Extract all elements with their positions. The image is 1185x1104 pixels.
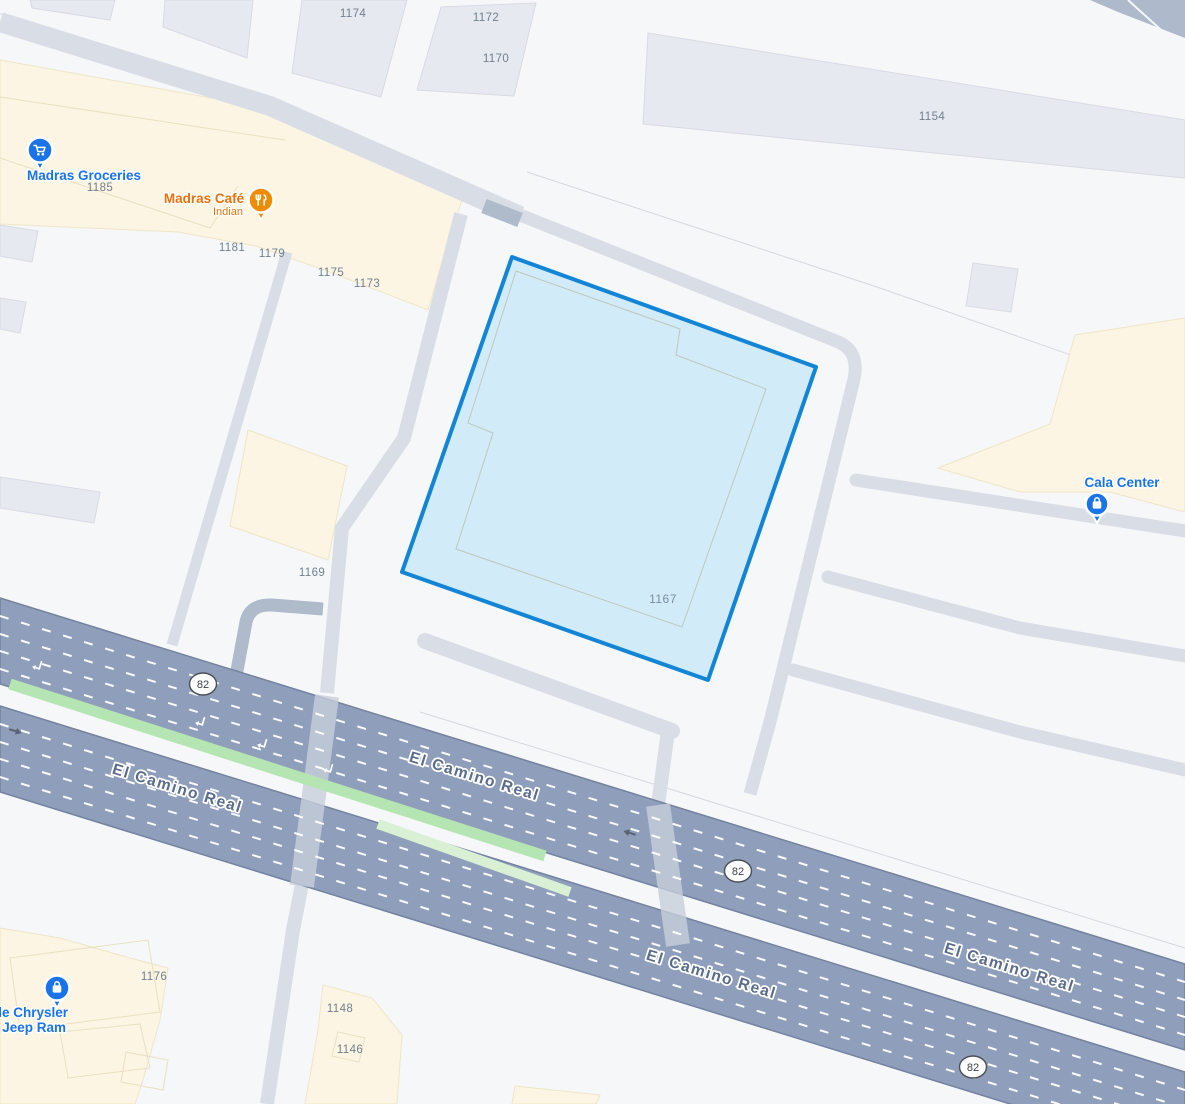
poi-label-madras-cafe[interactable]: Madras Café: [164, 191, 245, 206]
building-number: 1175: [318, 267, 344, 279]
building-number: 1185: [87, 182, 113, 194]
route-82-shield: 82: [960, 1056, 987, 1078]
route-shield-number: 82: [967, 1062, 979, 1074]
building-number: 1154: [919, 111, 946, 123]
building-number: 1169: [299, 567, 325, 579]
poi-label-madras-groceries[interactable]: Madras Groceries: [27, 168, 141, 183]
building-number: 1170: [483, 53, 509, 65]
building-number: 1181: [219, 242, 245, 254]
parcel-number: 1167: [649, 592, 677, 606]
poi-label-chrysler-line2[interactable]: e Jeep Ram: [0, 1020, 66, 1035]
route-shield-number: 82: [732, 866, 744, 878]
building-number: 1173: [354, 278, 380, 290]
route-82-shield: 82: [190, 673, 217, 695]
building-number: 1172: [473, 12, 499, 24]
building-number: 1176: [141, 971, 167, 983]
building-number: 1148: [327, 1003, 353, 1015]
poi-label-chrysler-line1[interactable]: ale Chrysler: [0, 1005, 69, 1020]
route-shield-number: 82: [197, 679, 209, 691]
poi-pin[interactable]: [28, 138, 53, 163]
building-number: 1146: [337, 1044, 363, 1056]
poi-pin[interactable]: [249, 188, 274, 213]
building-number: 1179: [259, 248, 285, 260]
poi-sublabel-indian: Indian: [213, 206, 243, 218]
map-canvas[interactable]: 1167 1174 1172 1170 1154 1185 1181 1179 …: [0, 0, 1185, 1104]
route-82-shield: 82: [725, 860, 752, 882]
poi-label-cala-center[interactable]: Cala Center: [1084, 475, 1160, 490]
building: [966, 263, 1018, 312]
street-l-access-south: [658, 731, 668, 805]
building: [0, 225, 38, 262]
building-number: 1174: [340, 8, 367, 20]
